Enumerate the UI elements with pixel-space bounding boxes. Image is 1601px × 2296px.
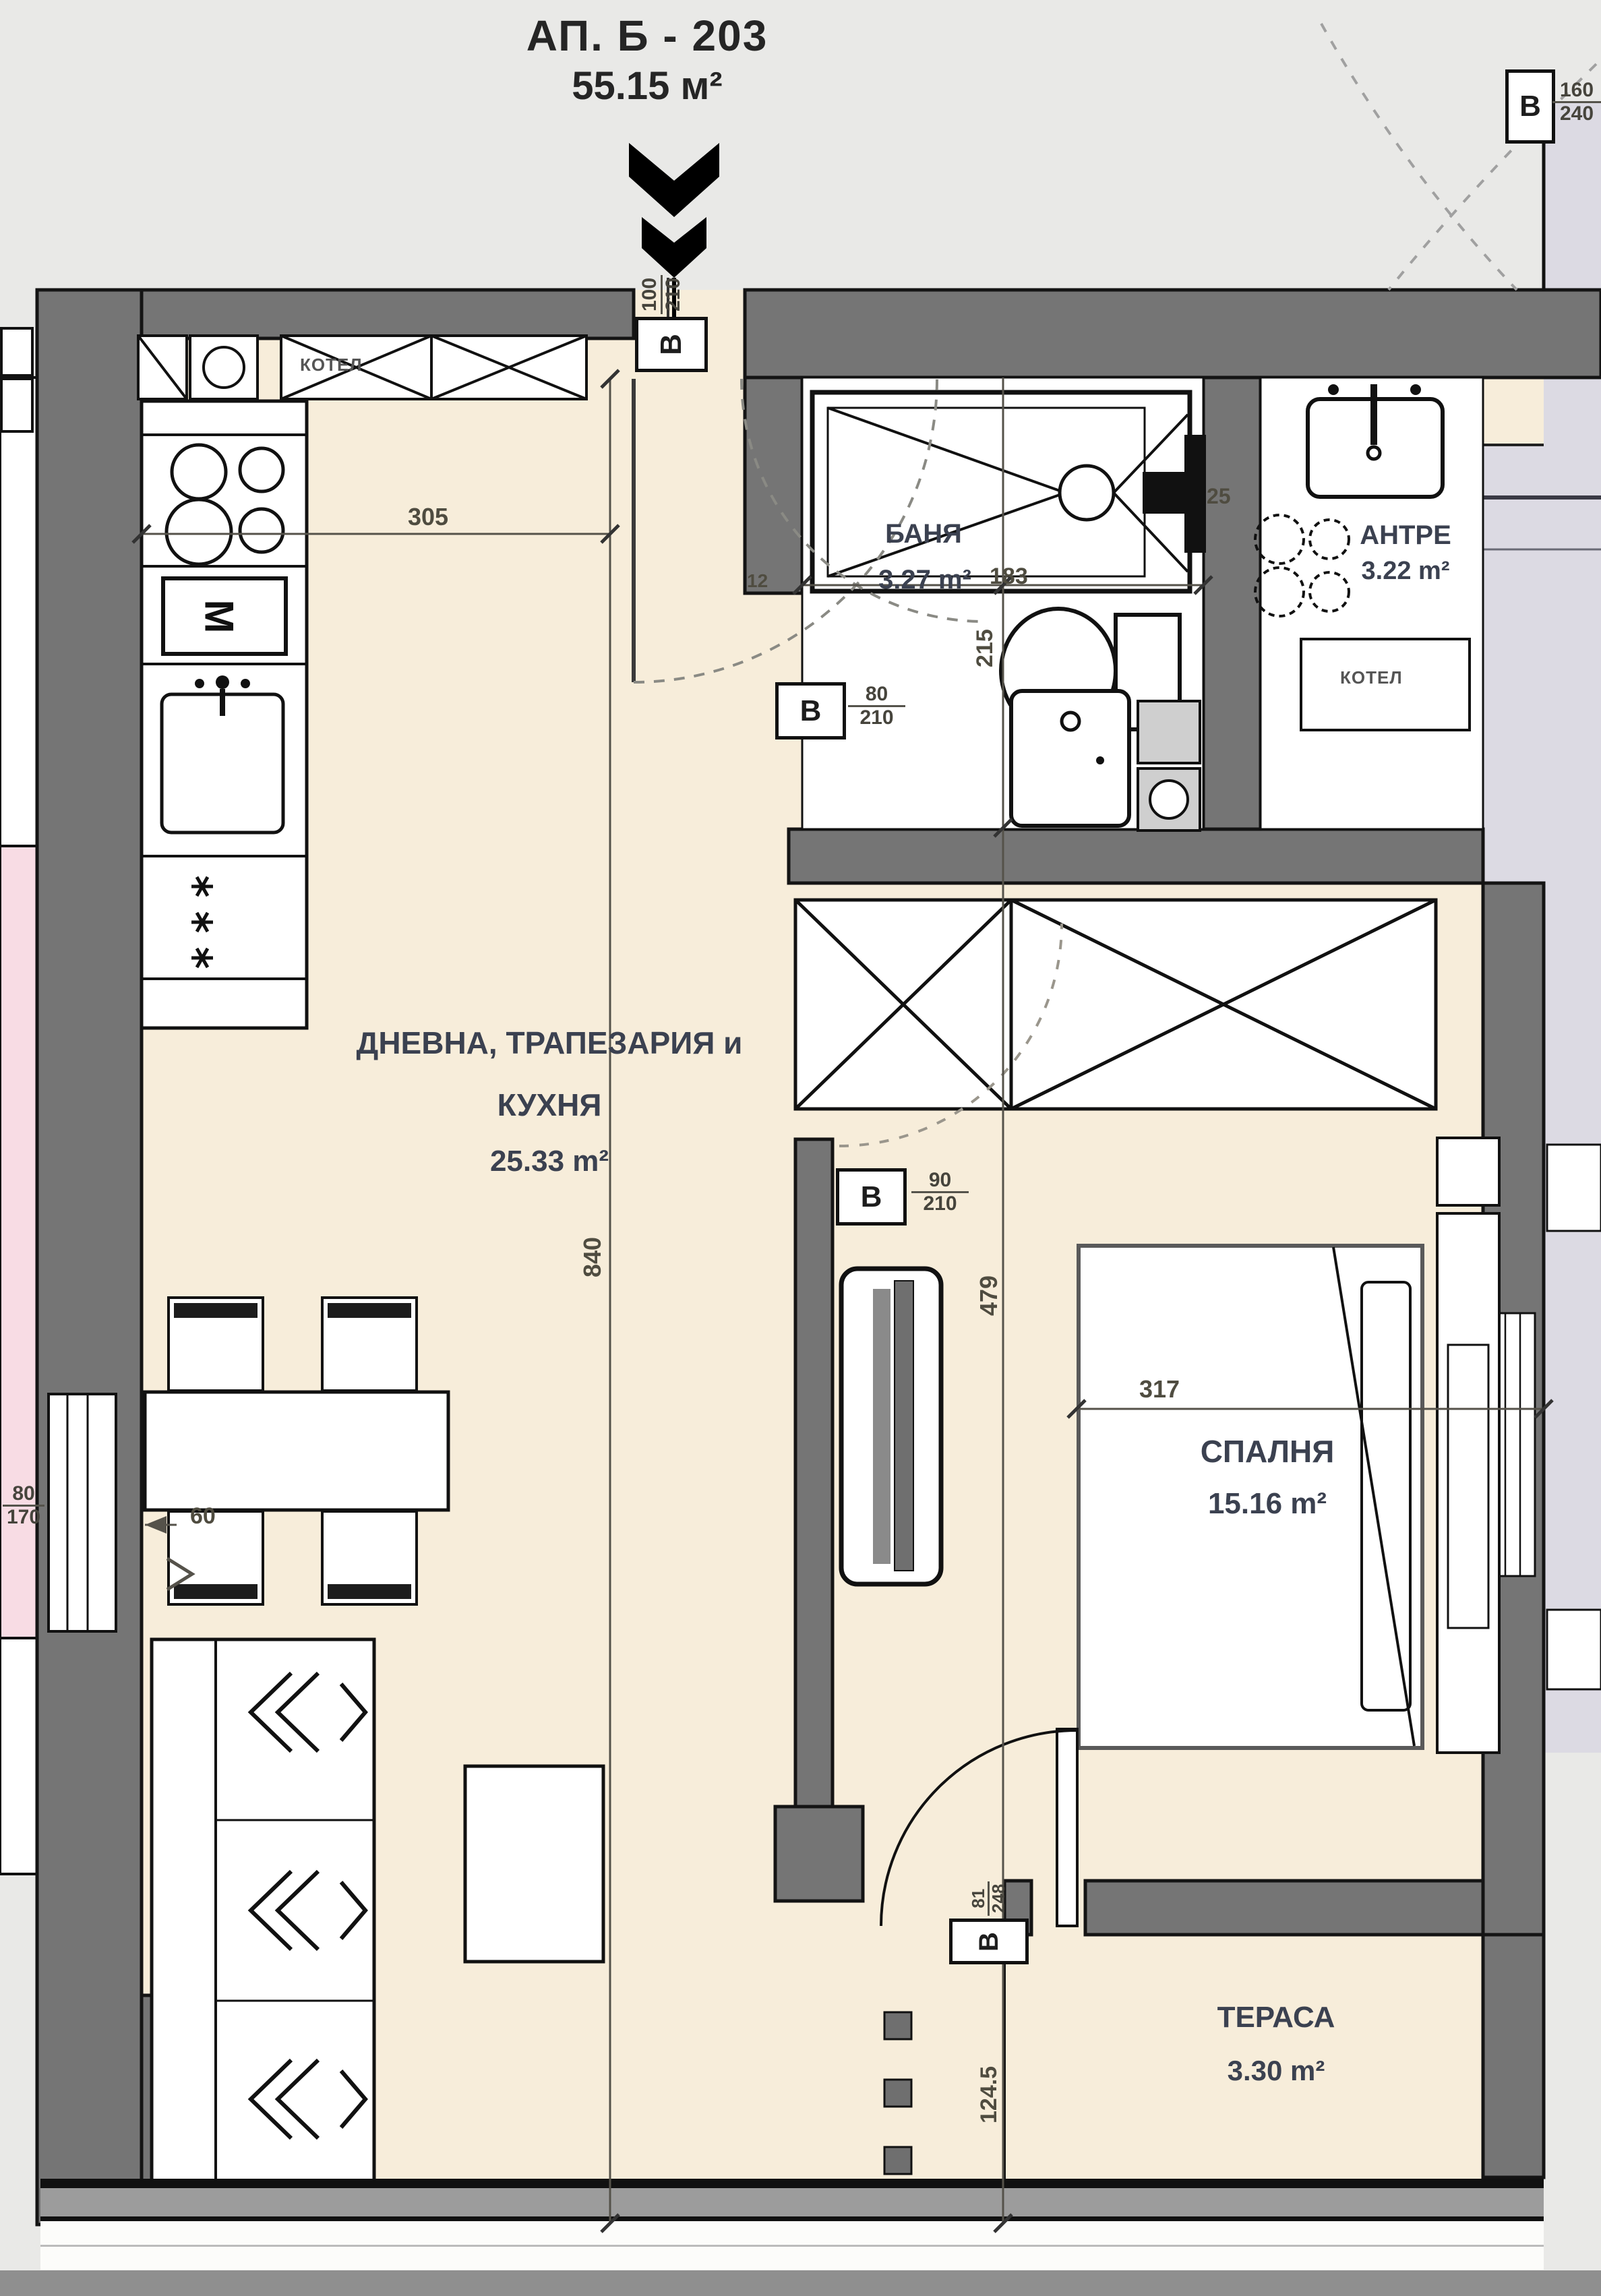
wall-bath-left xyxy=(745,377,802,593)
terrace-door-leaf xyxy=(1057,1729,1077,1926)
dim-479: 479 xyxy=(975,1275,1003,1316)
room-label-living-2: КУХНЯ xyxy=(381,1087,718,1123)
wardrobe xyxy=(795,900,1436,1109)
boiler-label-top: КОТЕЛ xyxy=(300,355,363,375)
neighbor-fixtures xyxy=(1,328,32,431)
wall-hall-foot xyxy=(775,1807,863,1901)
door-marker-neighbor: В xyxy=(1505,69,1555,144)
dim-183: 183 xyxy=(990,564,1028,590)
chair xyxy=(169,1511,263,1604)
dim-window-80-170: 80 170 xyxy=(3,1483,44,1528)
door-size-entry: 100 210 xyxy=(639,275,684,314)
neighbor-fixture-icon xyxy=(1,379,32,431)
coffee-table xyxy=(465,1766,603,1962)
door-size-neighbor: 160 240 xyxy=(1552,80,1601,124)
shower-bracket-icon xyxy=(1184,435,1206,553)
floorplan-linework xyxy=(0,0,1601,2296)
dim-305: 305 xyxy=(377,503,479,531)
boiler-label-closet: КОТЕЛ xyxy=(1340,667,1403,688)
room-label-terrace: ТЕРАСА xyxy=(1155,2001,1397,2034)
antre xyxy=(1255,377,1483,829)
room-area-living: 25.33 m² xyxy=(381,1145,718,1178)
wall-terrace-right xyxy=(1483,1935,1544,2177)
chair xyxy=(322,1298,417,1391)
neighbor-fixture-icon xyxy=(1,328,32,375)
wall-bath-antre xyxy=(1203,377,1261,829)
dim-12: 12 xyxy=(747,570,768,592)
wall-left xyxy=(37,290,142,2225)
room-label-bedroom: СПАЛНЯ xyxy=(1146,1433,1389,1470)
dim-840: 840 xyxy=(578,1237,607,1277)
neighbor-strip-right xyxy=(1544,290,1601,1753)
door-marker-bath: В xyxy=(775,682,846,739)
room-area-bedroom: 15.16 m² xyxy=(1146,1487,1389,1521)
hall-cabinet xyxy=(841,1269,941,1584)
door-size-bedroom: 90 210 xyxy=(911,1170,969,1214)
bottom-window-band xyxy=(0,2179,1601,2296)
window-left xyxy=(49,1394,116,1631)
antre-sink xyxy=(1308,384,1443,497)
door-marker-bedroom: В xyxy=(836,1168,907,1226)
bath-sink xyxy=(1011,691,1129,826)
door-marker-entry: В xyxy=(635,317,708,372)
tap-icon xyxy=(1143,472,1184,514)
dining-table xyxy=(145,1392,448,1510)
sofa xyxy=(152,1639,374,2182)
kitchen-sink xyxy=(162,675,283,833)
dim-215: 215 xyxy=(972,629,998,667)
room-area-terrace: 3.30 m² xyxy=(1155,2055,1397,2087)
bedroom-dresser xyxy=(1437,1138,1499,1753)
room-label-antre: АНТРЕ xyxy=(1315,520,1497,551)
neighbor-door-arc xyxy=(1321,24,1517,290)
wall-hall xyxy=(795,1139,833,1881)
bathtub xyxy=(812,392,1206,591)
chair xyxy=(322,1511,417,1604)
dim-25: 25 xyxy=(1207,484,1231,509)
wall-corridor xyxy=(789,829,1483,883)
nightstand xyxy=(1437,1138,1499,1205)
chair xyxy=(169,1298,263,1391)
door-marker-terrace: В xyxy=(949,1919,1029,1964)
door-size-terrace: 81 248 xyxy=(969,1881,1008,1916)
floor-plan: АП. Б - 203 55.15 м² ДНЕВНА, ТРАПЕЗАРИЯ … xyxy=(0,0,1601,2296)
apartment-title: АП. Б - 203 xyxy=(377,11,917,61)
room-label-living-1: ДНЕВНА, ТРАПЕЗАРИЯ и xyxy=(263,1025,836,1061)
apartment-area: 55.15 м² xyxy=(377,63,917,109)
neighbor-room-white xyxy=(0,377,40,846)
oven-letter: М xyxy=(195,600,242,634)
wall-terrace-top xyxy=(1085,1881,1483,1935)
neighbor-window-room xyxy=(0,1638,40,1874)
door-size-bath: 80 210 xyxy=(848,684,905,728)
wall-top-right xyxy=(745,290,1601,377)
room-area-antre: 3.22 m² xyxy=(1315,557,1497,586)
dim-317: 317 xyxy=(1112,1375,1207,1403)
dim-60: 60 xyxy=(190,1503,216,1530)
dim-124-5: 124.5 xyxy=(976,2066,1002,2123)
room-label-bath: БАНЯ xyxy=(822,519,1025,549)
